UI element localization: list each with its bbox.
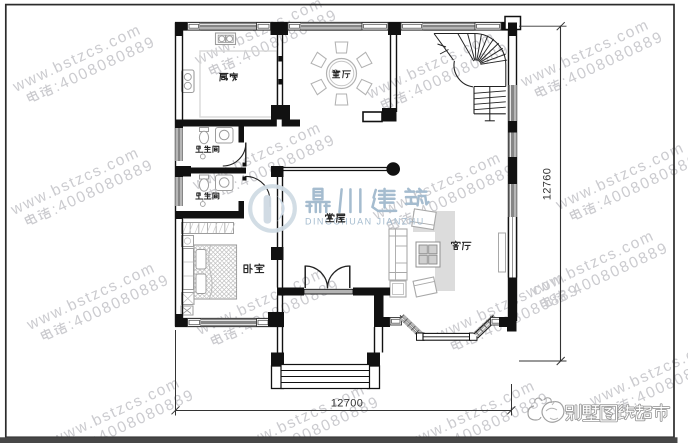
svg-text:12700: 12700 bbox=[331, 398, 364, 410]
svg-text:DINGCHUAN JIANZHU: DINGCHUAN JIANZHU bbox=[305, 217, 425, 227]
svg-text:12760: 12760 bbox=[542, 168, 554, 201]
